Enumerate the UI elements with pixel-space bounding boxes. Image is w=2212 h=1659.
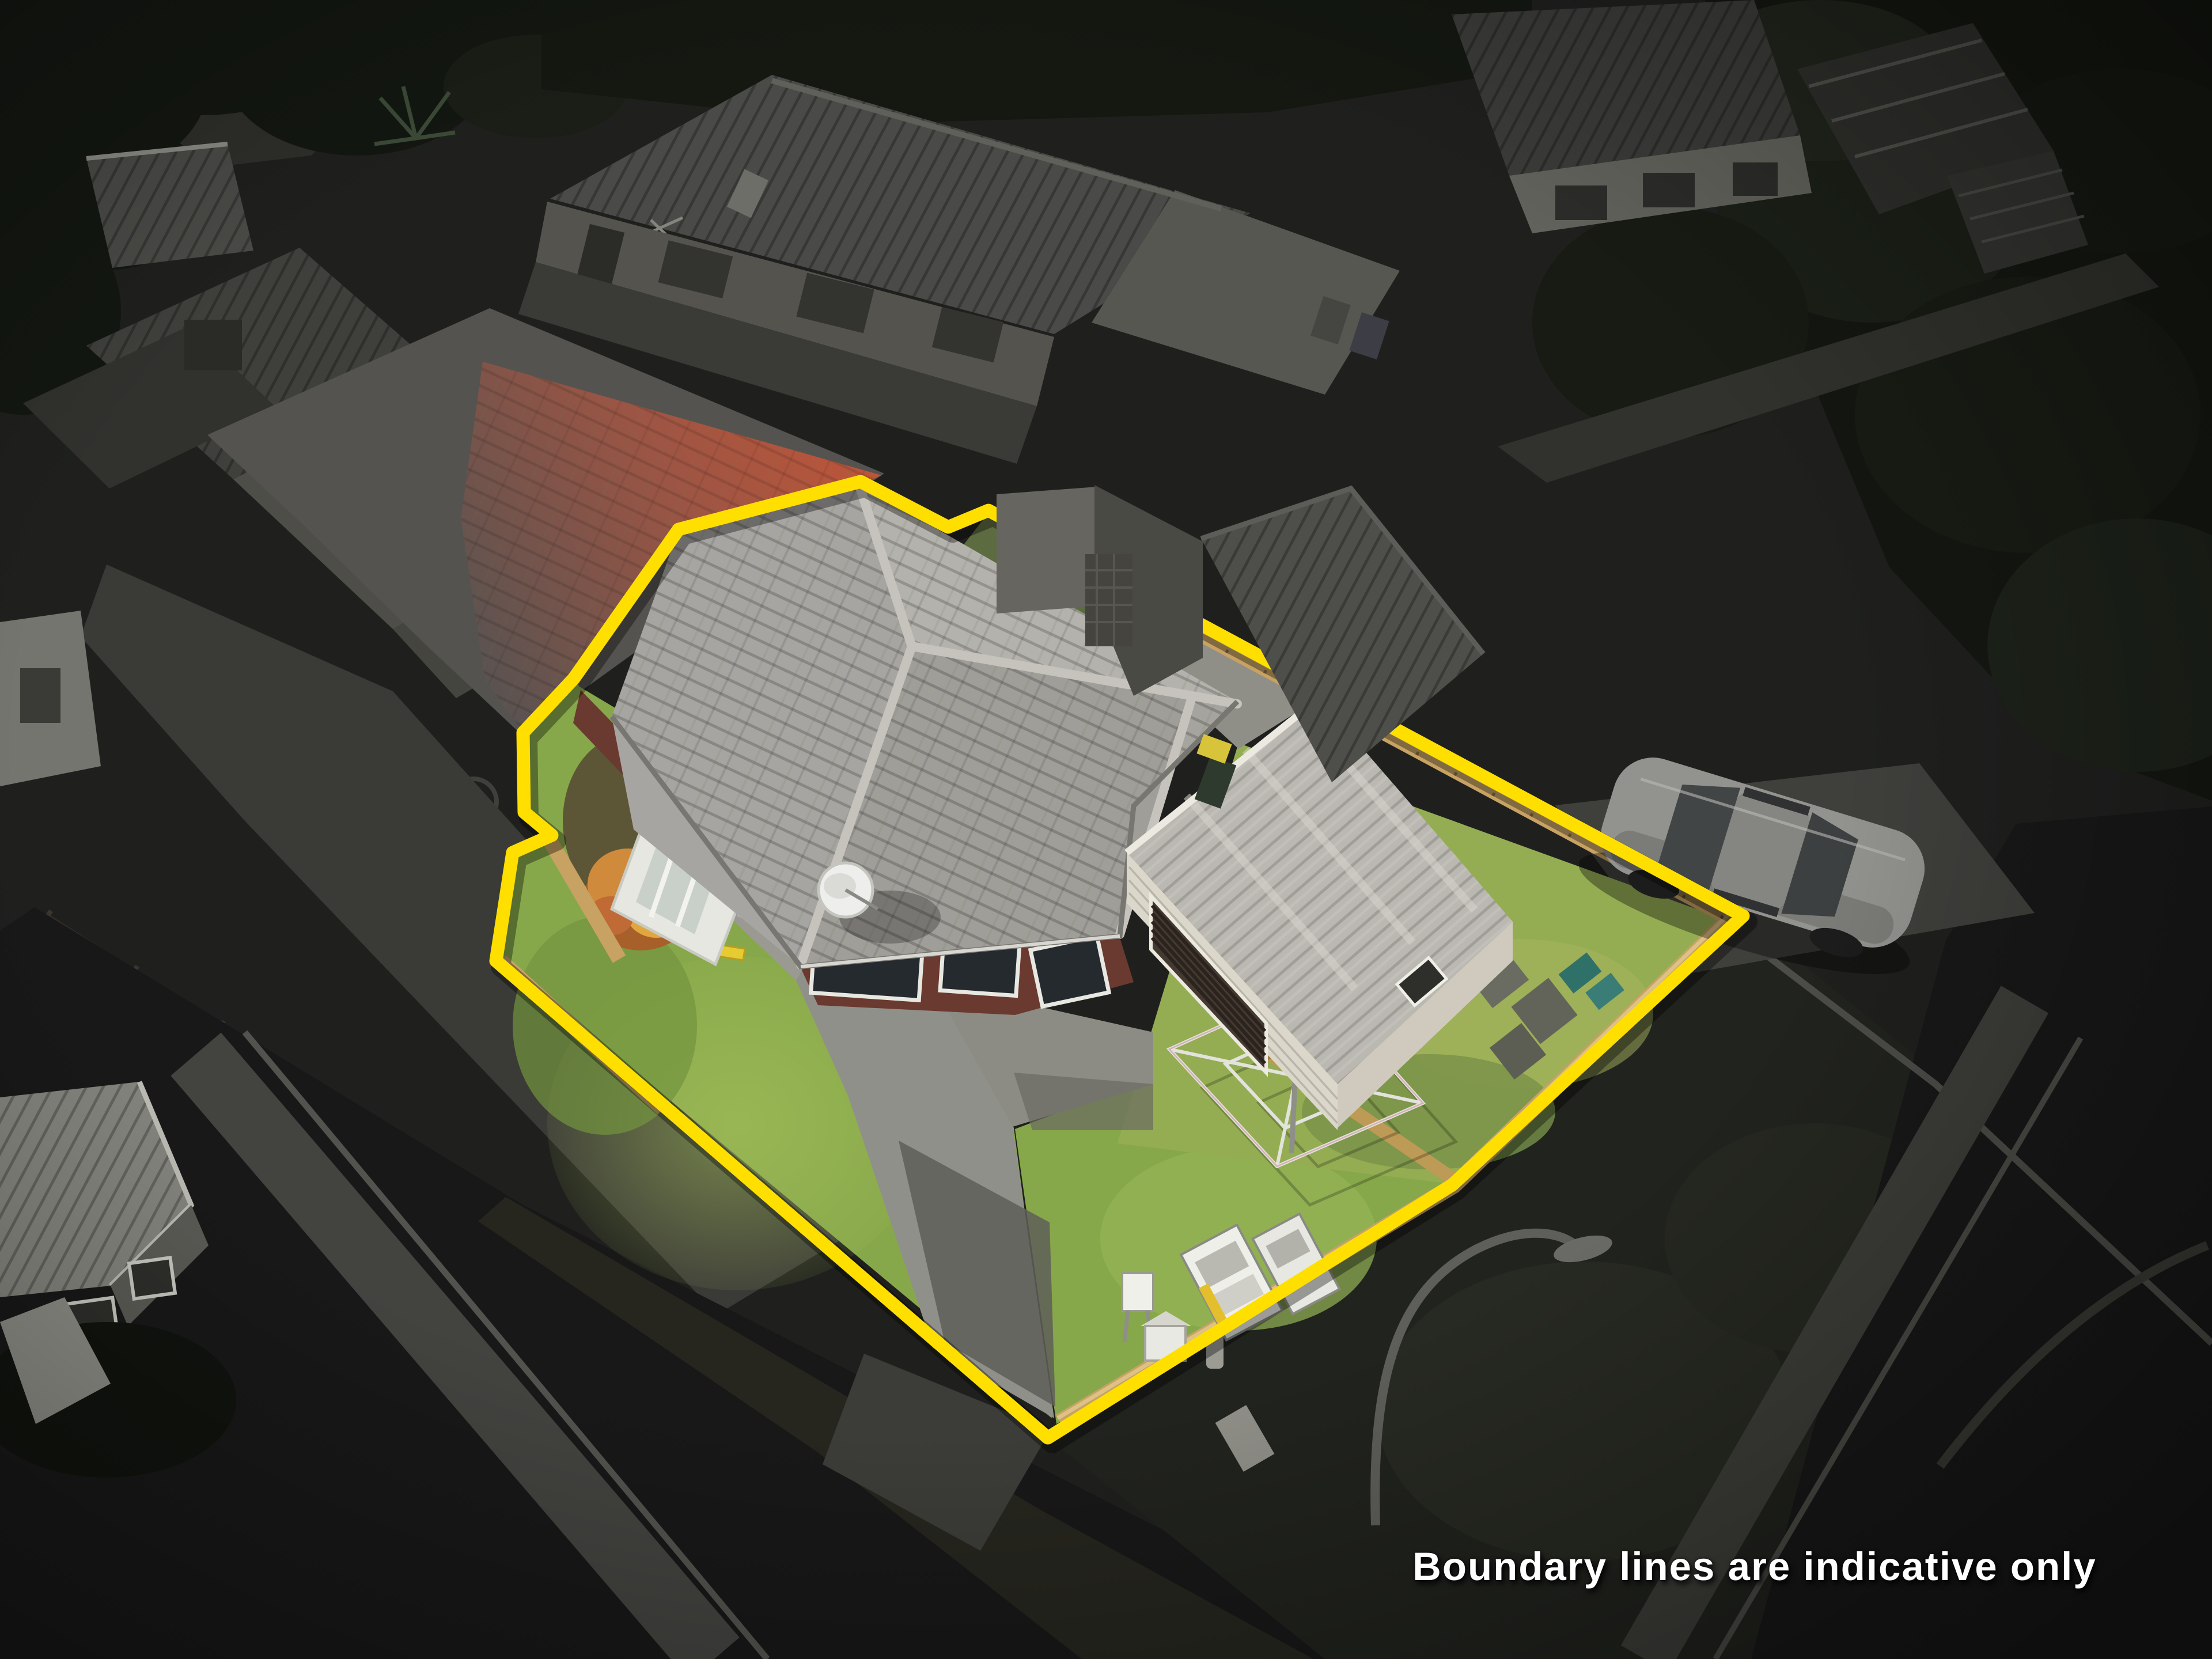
aerial-photo	[0, 0, 2212, 1659]
boundary-disclaimer: Boundary lines are indicative only	[1412, 1544, 2097, 1589]
